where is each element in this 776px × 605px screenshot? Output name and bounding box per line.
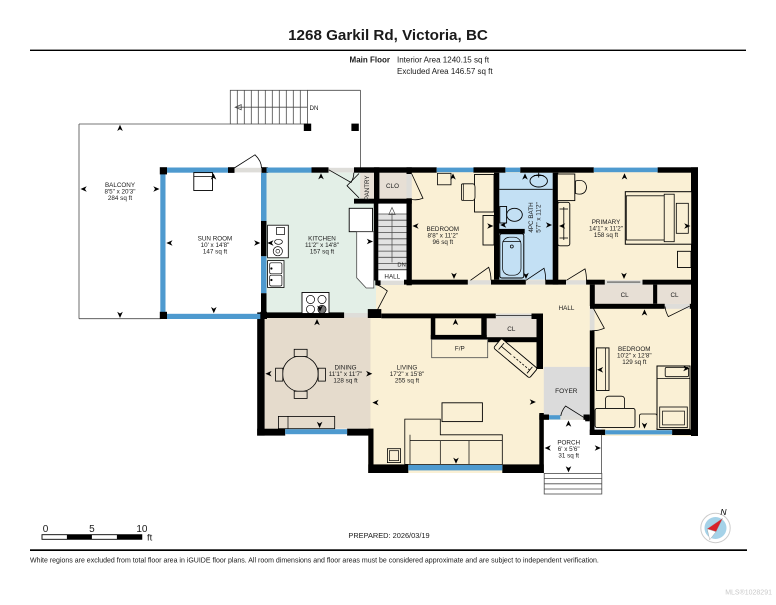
svg-text:CL: CL xyxy=(670,292,679,299)
svg-text:HALL: HALL xyxy=(384,274,400,281)
svg-text:HALL: HALL xyxy=(559,305,575,312)
svg-text:31 sq ft: 31 sq ft xyxy=(558,452,579,459)
svg-text:N: N xyxy=(720,507,727,517)
svg-text:5'7" x 11'2": 5'7" x 11'2" xyxy=(536,202,543,233)
svg-text:CL: CL xyxy=(507,326,516,333)
svg-text:4PC BATH: 4PC BATH xyxy=(528,202,535,233)
svg-text:255 sq ft: 255 sq ft xyxy=(395,378,419,385)
svg-text:CL: CL xyxy=(621,292,630,299)
svg-text:128 sq ft: 128 sq ft xyxy=(333,378,357,385)
svg-text:284 sq ft: 284 sq ft xyxy=(108,195,132,202)
svg-text:Excluded Area 146.57 sq ft: Excluded Area 146.57 sq ft xyxy=(397,67,493,76)
svg-text:PREPARED: 2026/03/19: PREPARED: 2026/03/19 xyxy=(348,531,429,540)
svg-text:1268 Garkil Rd, Victoria, BC: 1268 Garkil Rd, Victoria, BC xyxy=(288,27,488,44)
svg-text:0: 0 xyxy=(43,524,49,535)
svg-text:DN: DN xyxy=(397,262,405,268)
svg-text:ft: ft xyxy=(147,533,153,544)
svg-text:White regions are excluded fro: White regions are excluded from total fl… xyxy=(30,558,599,565)
svg-text:158 sq ft: 158 sq ft xyxy=(594,232,618,239)
svg-text:MLS®1028291: MLS®1028291 xyxy=(725,589,772,597)
svg-text:CLO: CLO xyxy=(386,183,399,190)
svg-text:157 sq ft: 157 sq ft xyxy=(310,249,334,256)
svg-text:DN: DN xyxy=(310,105,319,112)
svg-text:96 sq ft: 96 sq ft xyxy=(432,239,453,246)
svg-text:5: 5 xyxy=(89,524,95,535)
svg-text:F/P: F/P xyxy=(455,346,465,353)
svg-text:Interior Area 1240.15 sq ft: Interior Area 1240.15 sq ft xyxy=(397,56,490,65)
svg-text:129 sq ft: 129 sq ft xyxy=(622,359,646,366)
svg-text:PANTRY: PANTRY xyxy=(364,176,371,201)
svg-text:147 sq ft: 147 sq ft xyxy=(203,249,227,256)
svg-text:Main Floor: Main Floor xyxy=(350,56,390,65)
svg-text:FOYER: FOYER xyxy=(555,388,578,395)
